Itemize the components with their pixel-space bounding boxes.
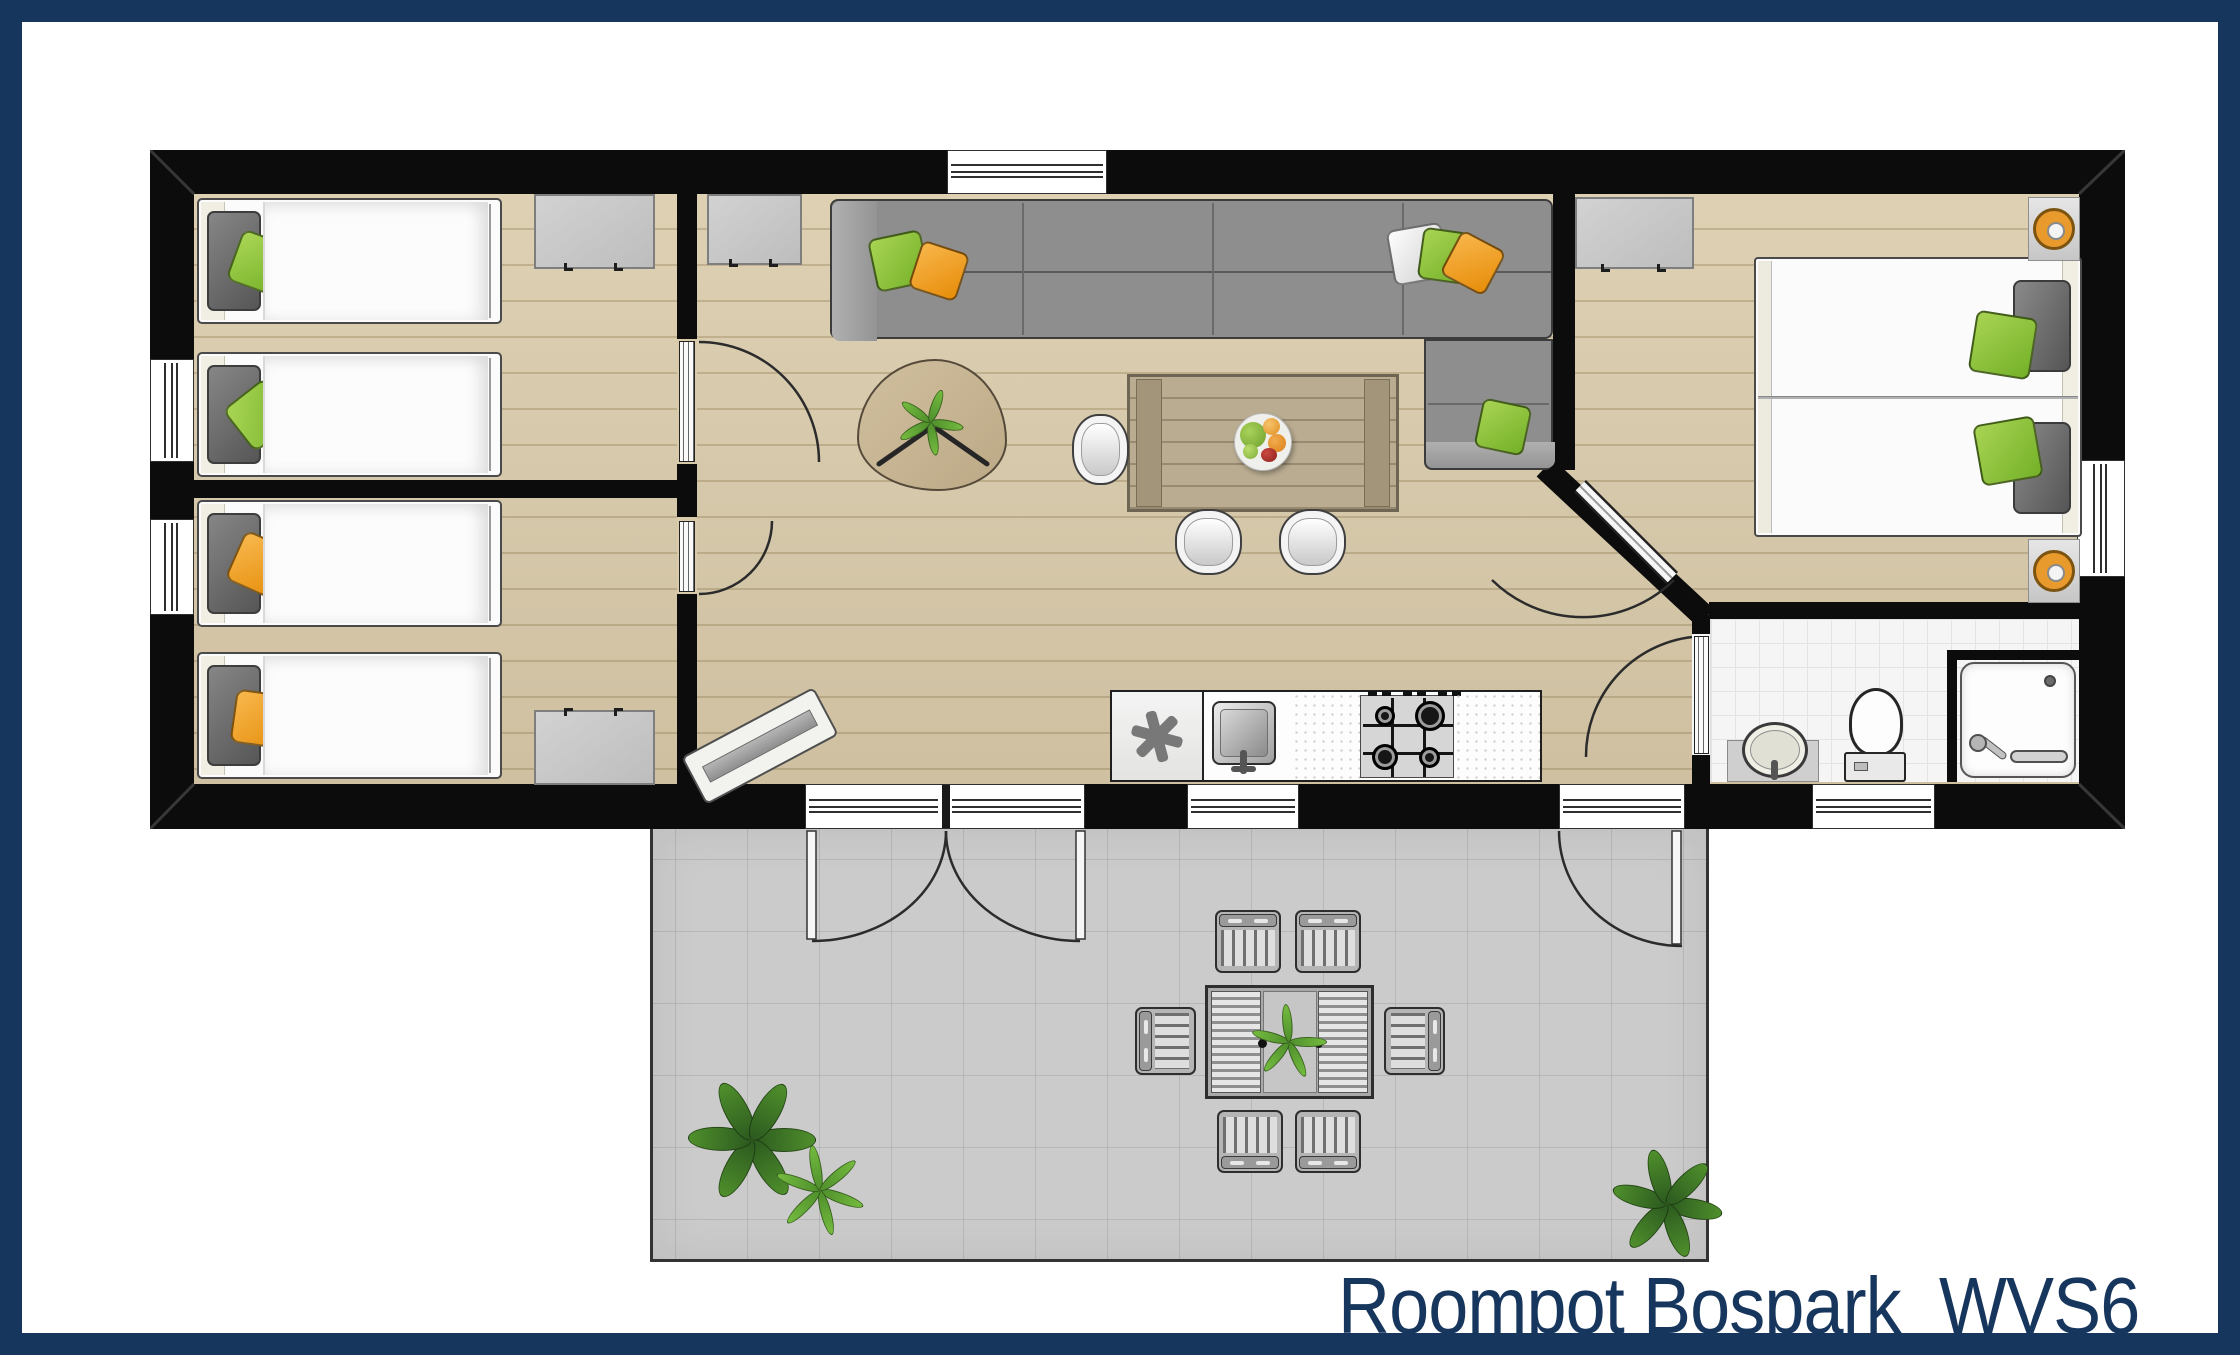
fruit-bowl xyxy=(1234,413,1292,471)
door-leaf-bathroom xyxy=(1694,636,1709,754)
bed-duvet xyxy=(263,202,488,320)
wardrobe-hook xyxy=(564,263,573,271)
plan-title: Roompot Bospark WVS6 xyxy=(1338,1260,2139,1352)
table-slats xyxy=(1211,991,1261,1093)
bed-duvet xyxy=(263,356,488,473)
table-rail xyxy=(1136,379,1162,507)
appliance-star xyxy=(1112,692,1204,780)
hob-control xyxy=(1368,691,1377,696)
chair-seat xyxy=(1081,423,1120,476)
outdoor-chair-left xyxy=(1135,1007,1196,1075)
window-left-bedroom-b xyxy=(150,519,194,615)
wall-between-left-bedrooms xyxy=(150,480,697,498)
window-glazing xyxy=(1816,799,1931,813)
french-door-right-glazing xyxy=(952,799,1081,813)
counter-segment xyxy=(1454,692,1540,780)
bedside-lamp xyxy=(2033,208,2075,250)
bed-foot xyxy=(489,358,491,471)
sofa-seam xyxy=(1022,203,1024,335)
outdoor-chair-top-1 xyxy=(1215,910,1281,973)
wardrobe-hook xyxy=(614,708,623,716)
terrace-door-right xyxy=(1559,784,1685,829)
toilet xyxy=(1849,688,1903,756)
window-bathroom xyxy=(1812,784,1935,829)
bed-foot xyxy=(489,204,491,318)
shower-drain xyxy=(2044,675,2056,687)
burner-medium xyxy=(1372,744,1398,770)
burner-large xyxy=(1415,701,1445,731)
window-left-bedroom-a xyxy=(150,359,194,462)
sofa-armrest xyxy=(832,201,877,341)
shower-wall-left xyxy=(1947,650,1957,782)
hob-control xyxy=(1403,691,1412,696)
hob-control xyxy=(1417,691,1426,696)
sofa-seam xyxy=(1212,203,1214,335)
wardrobe-hook xyxy=(729,259,738,267)
kitchen-sink-unit xyxy=(1204,692,1292,780)
terrace-door-glazing xyxy=(1563,799,1681,813)
table-rail xyxy=(1364,379,1390,507)
dining-chair-bottom-1 xyxy=(1175,509,1242,575)
outdoor-chair-right xyxy=(1384,1007,1445,1075)
hand-shower-head xyxy=(1969,734,1987,752)
bed-foot xyxy=(489,658,491,773)
chair-seat xyxy=(1184,518,1233,566)
berries xyxy=(1261,448,1277,462)
window-glazing xyxy=(1191,799,1295,813)
door-leaf-bedroom-b xyxy=(679,521,695,592)
window-glazing xyxy=(2093,464,2107,573)
single-bed-2 xyxy=(197,352,502,477)
wall-bedrooms-hall xyxy=(677,172,697,784)
tv-cabinet-bedroom-right xyxy=(1575,197,1694,269)
bed-duvet xyxy=(263,504,488,623)
bed-pillow-green xyxy=(1972,415,2044,487)
table-decor-branch xyxy=(934,425,991,467)
mattress-divider xyxy=(1758,396,2078,399)
flush-button xyxy=(1854,762,1868,771)
gas-hob xyxy=(1360,695,1454,778)
bed-duvet xyxy=(263,656,488,775)
window-kitchen xyxy=(1187,784,1299,829)
dining-chair-left xyxy=(1072,414,1129,485)
wall-bathroom-top xyxy=(1709,602,2079,620)
kitchen-counter xyxy=(1110,690,1542,782)
wardrobe-hook xyxy=(564,708,573,716)
window-glazing xyxy=(164,363,178,458)
toilet-cistern xyxy=(1844,752,1906,782)
burner-medium xyxy=(1419,747,1440,768)
hob-control xyxy=(1382,691,1391,696)
window-right-bedroom xyxy=(2077,460,2125,577)
wardrobe-hall xyxy=(707,194,802,265)
wall-living-bedroom-right xyxy=(1553,172,1575,470)
chair-seat xyxy=(1288,518,1337,566)
shower-bar xyxy=(2010,750,2068,763)
wardrobe-hook xyxy=(769,259,778,267)
outdoor-chair-bottom-1 xyxy=(1217,1110,1283,1173)
french-door-mullion xyxy=(942,785,950,828)
single-bed-4 xyxy=(197,652,502,779)
bed-foot xyxy=(489,506,491,621)
dining-chair-bottom-2 xyxy=(1279,509,1346,575)
wardrobe-hook xyxy=(614,263,623,271)
wardrobe-bedroom-a xyxy=(534,194,655,269)
floorplan-image: Roompot Bospark WVS6 xyxy=(0,0,2240,1355)
shower-wall-top xyxy=(1947,650,2079,660)
hob-control xyxy=(1438,691,1447,696)
single-bed-1 xyxy=(197,198,502,324)
window-glazing xyxy=(951,164,1103,178)
bed-pillow-green xyxy=(1968,310,2039,381)
burner-small xyxy=(1375,706,1395,726)
window-top-living xyxy=(947,150,1107,194)
counter-segment xyxy=(1292,692,1360,780)
outdoor-chair-bottom-2 xyxy=(1295,1110,1361,1173)
cabinet-foot xyxy=(1601,264,1610,272)
door-leaf-bedroom-a xyxy=(679,341,695,462)
window-glazing xyxy=(164,523,178,611)
outdoor-chair-top-2 xyxy=(1295,910,1361,973)
french-doors-terrace xyxy=(805,784,1085,829)
faucet xyxy=(1240,750,1247,774)
wardrobe-bedroom-b xyxy=(534,710,655,785)
chaise-pillow-green xyxy=(1473,397,1532,456)
orange-fruit xyxy=(1263,418,1280,435)
basin-faucet xyxy=(1771,760,1778,780)
dining-table xyxy=(1127,374,1399,512)
cabinet-foot xyxy=(1657,264,1666,272)
single-bed-3 xyxy=(197,500,502,627)
bedside-lamp xyxy=(2033,550,2075,592)
french-door-left-glazing xyxy=(809,799,938,813)
apple xyxy=(1243,444,1258,459)
